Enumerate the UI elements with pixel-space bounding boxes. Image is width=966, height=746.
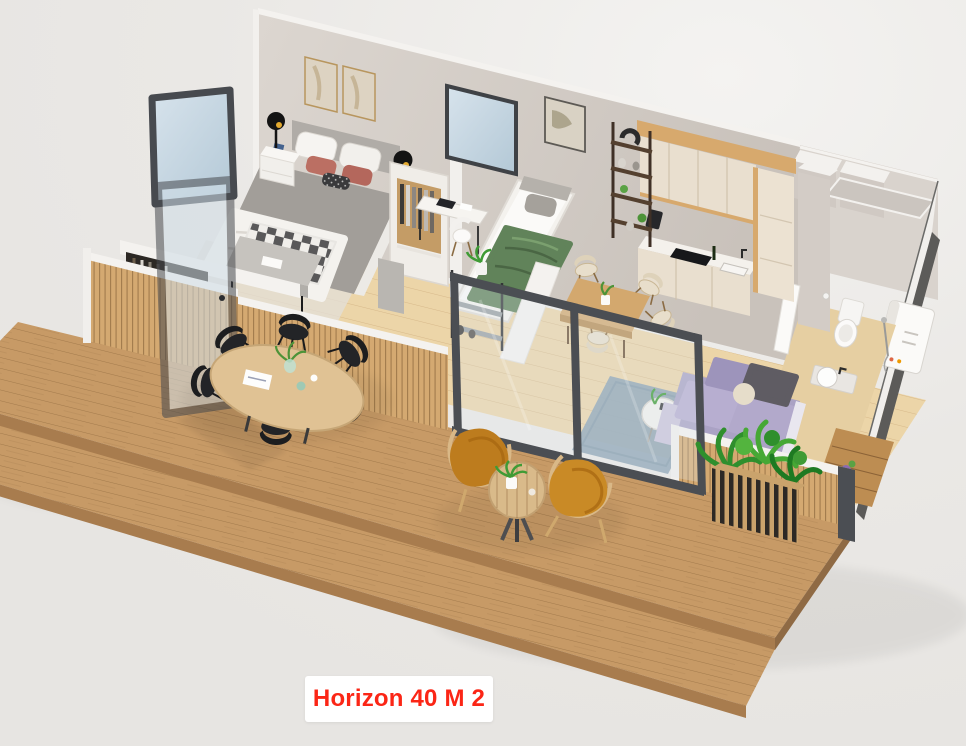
gray-side-cabinet [378,258,404,314]
lounge-cup [529,489,536,496]
glass-vase [284,359,296,373]
corner-post [838,466,855,542]
bathroom-partition-wall [798,172,830,332]
shelf-plant-2 [638,214,647,223]
back-window [447,86,516,174]
cup-white [311,375,318,382]
floorplan-label: Horizon 40 M 2 [305,676,493,722]
floorplan-render [0,0,966,746]
framed-art-single [545,97,585,152]
toilet-paper [823,293,829,299]
sofa-pillow-cream [733,383,755,405]
kitchen-tall-cabinet [758,168,794,302]
floorplan-page: Horizon 40 M 2 [0,0,966,746]
cup-green [297,382,306,391]
door-handle [219,295,225,301]
wall-end-post [83,248,91,343]
shelf-plant-1 [620,185,628,193]
